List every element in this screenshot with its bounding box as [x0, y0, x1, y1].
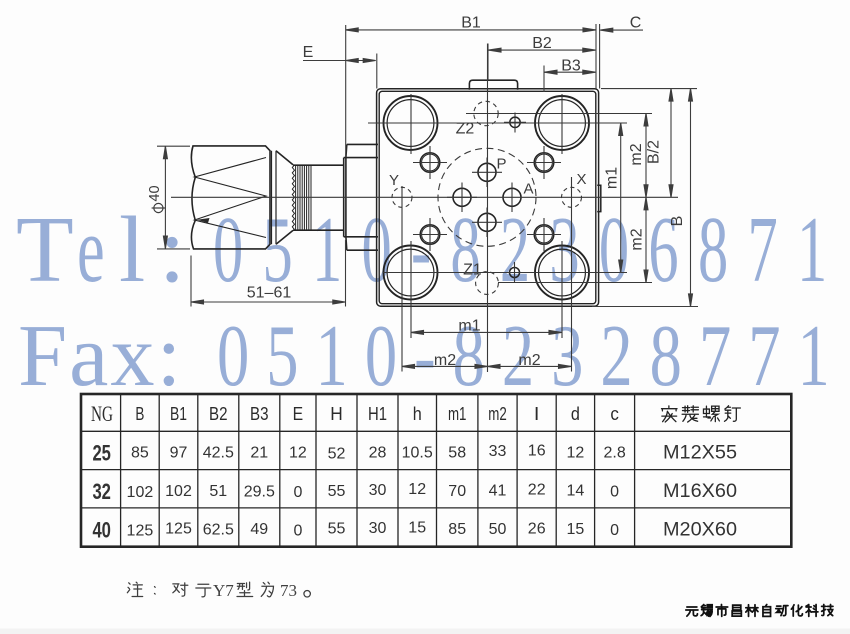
svg-text:m2: m2	[488, 404, 507, 424]
svg-text:P: P	[496, 156, 506, 173]
svg-text:C: C	[630, 15, 642, 32]
svg-text:22: 22	[528, 482, 546, 499]
svg-text:52: 52	[328, 446, 346, 463]
svg-text:H: H	[330, 404, 343, 424]
svg-text:B2: B2	[209, 404, 228, 424]
svg-text:Y: Y	[389, 172, 399, 189]
svg-text:0: 0	[293, 522, 302, 539]
svg-text:2.8: 2.8	[603, 445, 625, 462]
svg-text:H1: H1	[368, 404, 387, 424]
svg-text:12: 12	[567, 445, 585, 462]
svg-text:70: 70	[448, 483, 466, 500]
svg-text:E: E	[303, 44, 314, 61]
svg-text:102: 102	[127, 484, 154, 501]
svg-text:m2: m2	[629, 228, 646, 250]
svg-text:102: 102	[165, 483, 192, 500]
svg-text:0: 0	[293, 484, 302, 501]
svg-text:14: 14	[567, 483, 585, 500]
svg-text:B/2: B/2	[646, 140, 663, 164]
svg-text:d: d	[571, 404, 580, 424]
svg-text:m2: m2	[434, 352, 456, 369]
svg-text:Y7: Y7	[213, 581, 234, 600]
svg-text:m1: m1	[448, 404, 467, 424]
svg-text:B1: B1	[170, 404, 187, 424]
svg-text:B: B	[669, 216, 686, 227]
svg-text:51: 51	[209, 483, 227, 500]
svg-text:12: 12	[289, 445, 307, 462]
svg-text:85: 85	[131, 445, 149, 462]
svg-text:h: h	[413, 404, 422, 424]
svg-text:12: 12	[408, 481, 426, 498]
svg-text:51–61: 51–61	[247, 285, 292, 302]
svg-text:Z1: Z1	[463, 262, 482, 279]
svg-text:B3: B3	[250, 404, 269, 424]
svg-text:B1: B1	[461, 15, 481, 32]
svg-text:125: 125	[127, 522, 154, 539]
svg-text:0: 0	[610, 522, 619, 539]
svg-text:c: c	[610, 404, 619, 424]
svg-text:B: B	[135, 404, 144, 424]
svg-text:33: 33	[489, 443, 507, 460]
svg-text:29.5: 29.5	[244, 484, 275, 501]
svg-text:NG: NG	[91, 401, 113, 426]
svg-text:125: 125	[165, 520, 192, 537]
svg-text:21: 21	[250, 445, 268, 462]
svg-text:32: 32	[92, 479, 111, 504]
svg-text:M12X55: M12X55	[663, 443, 737, 464]
svg-text:28: 28	[369, 445, 387, 462]
svg-text:B2: B2	[532, 35, 552, 52]
svg-text:X: X	[576, 171, 586, 188]
svg-text:58: 58	[448, 445, 466, 462]
svg-text:49: 49	[250, 521, 268, 538]
svg-text:Z2: Z2	[456, 121, 475, 138]
svg-text:26: 26	[528, 520, 546, 537]
svg-text:m2: m2	[518, 352, 540, 369]
svg-text:M16X60: M16X60	[663, 481, 737, 502]
svg-text:10.5: 10.5	[402, 445, 433, 462]
svg-text:55: 55	[328, 520, 346, 537]
svg-text:m1: m1	[458, 318, 480, 335]
svg-text:40: 40	[92, 518, 111, 543]
svg-text:30: 30	[369, 520, 387, 537]
svg-text:M20X60: M20X60	[663, 519, 737, 540]
svg-text:E: E	[293, 404, 304, 424]
svg-text:25: 25	[92, 441, 111, 466]
svg-text:85: 85	[448, 521, 466, 538]
svg-text:50: 50	[489, 521, 507, 538]
svg-text:97: 97	[170, 445, 188, 462]
svg-text:73: 73	[280, 581, 297, 600]
svg-text:0: 0	[610, 484, 619, 501]
svg-text:m2: m2	[628, 143, 645, 165]
svg-text:I: I	[534, 404, 540, 424]
svg-text:A: A	[523, 181, 533, 198]
svg-text:42.5: 42.5	[203, 445, 234, 462]
svg-text:55: 55	[328, 483, 346, 500]
svg-text:16: 16	[528, 443, 546, 460]
svg-text:m1: m1	[604, 167, 621, 189]
svg-text:15: 15	[567, 521, 585, 538]
svg-text:B3: B3	[561, 58, 581, 75]
svg-text:40: 40	[147, 185, 163, 201]
svg-text:15: 15	[408, 519, 426, 536]
svg-text:62.5: 62.5	[203, 521, 234, 538]
svg-text:41: 41	[489, 483, 507, 500]
svg-text:30: 30	[369, 482, 387, 499]
